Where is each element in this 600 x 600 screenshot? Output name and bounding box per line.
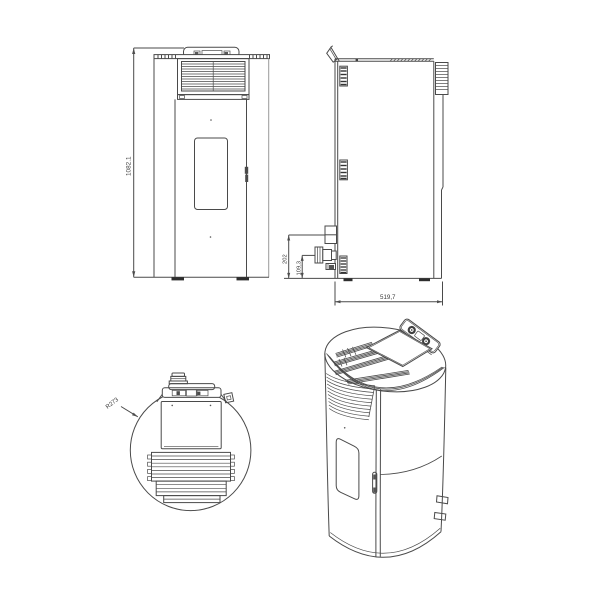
svg-text:519,7: 519,7 [380,294,396,301]
svg-text:202: 202 [283,254,289,264]
svg-text:1082.1: 1082.1 [125,156,132,176]
svg-text:109,3: 109,3 [296,261,302,276]
